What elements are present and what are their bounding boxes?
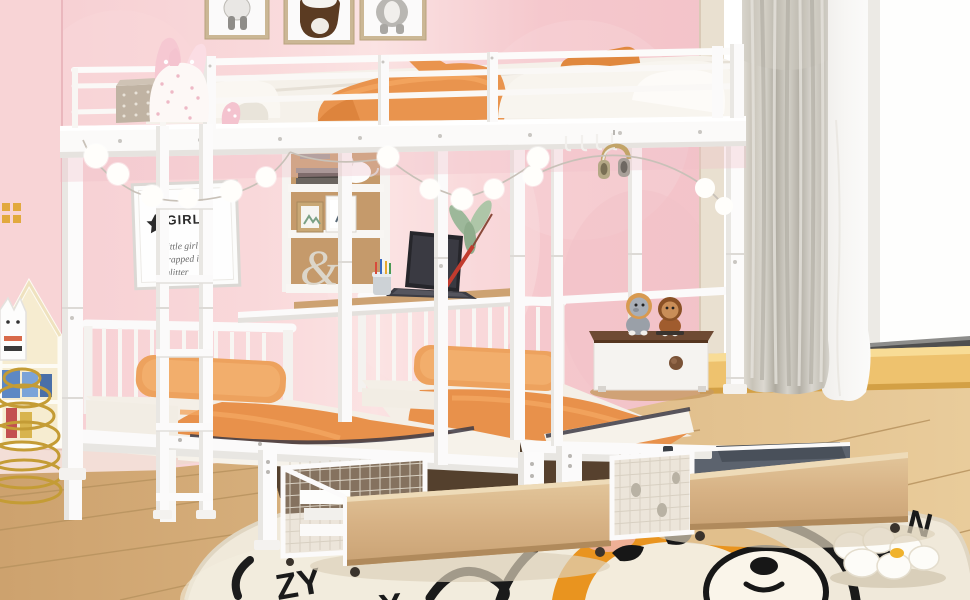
- svg-text:&: &: [300, 239, 339, 295]
- svg-text:GIRL: GIRL: [166, 211, 202, 227]
- svg-text:X: X: [377, 585, 405, 600]
